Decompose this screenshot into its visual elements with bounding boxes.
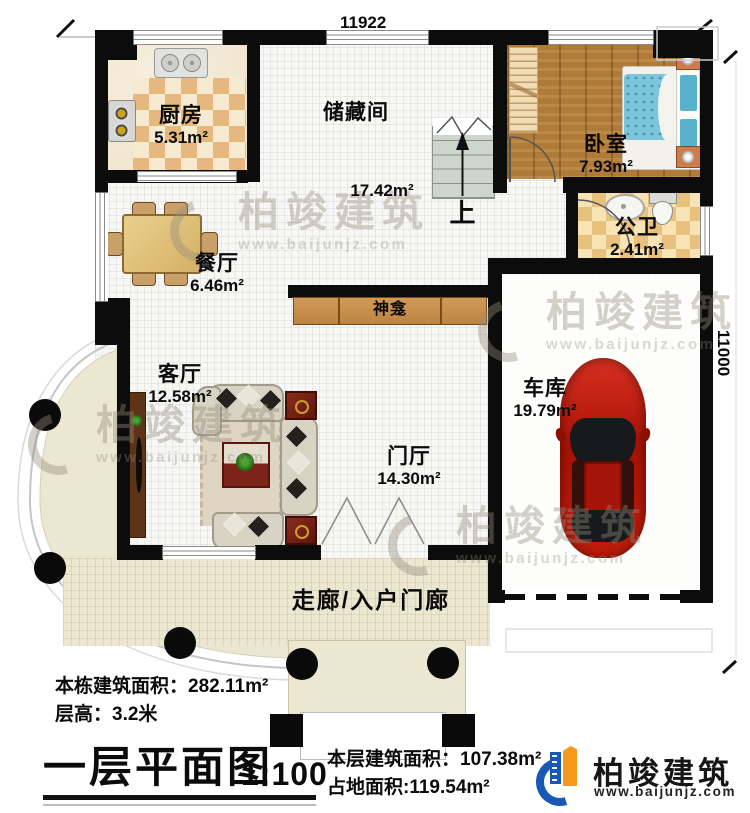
- stat-value: 3.2米: [112, 704, 157, 725]
- coffee-table: [222, 442, 270, 488]
- stat-label: 本层建筑面积：: [327, 749, 460, 770]
- stats-right: 本层建筑面积：107.38m² 占地面积:119.54m²: [327, 746, 541, 802]
- stat-building-total: 本栋建筑面积：282.11m²: [55, 673, 268, 701]
- column: [34, 552, 66, 584]
- room-label-bathroom: 公卫 2.41m²: [610, 216, 664, 259]
- stove-burner: [113, 105, 130, 122]
- room-area: 14.30m²: [377, 469, 440, 488]
- stat-label: 占地面积:: [327, 777, 409, 798]
- wall-segment: [488, 258, 713, 274]
- wall-segment: [428, 545, 490, 560]
- room-name: 餐厅: [190, 252, 244, 276]
- car-seats: [584, 462, 622, 512]
- bed-pillow: [679, 74, 698, 112]
- wall-segment: [488, 258, 502, 603]
- company-website: www.baijunjz.com: [594, 784, 736, 799]
- stat-value: 282.11m²: [188, 676, 268, 697]
- room-area: 19.79m²: [513, 401, 576, 420]
- title-underline-thin: [43, 804, 316, 806]
- room-name: 储藏间: [323, 101, 389, 125]
- window: [700, 206, 713, 256]
- stat-floor-height: 层高：3.2米: [55, 701, 268, 729]
- room-area: 5.31m²: [154, 128, 208, 147]
- room-area: 6.46m²: [190, 276, 244, 295]
- stat-label: 本栋建筑面积：: [55, 676, 188, 697]
- stove-burner: [113, 122, 130, 139]
- company-logo-icon: [536, 746, 588, 804]
- plant: [236, 453, 254, 471]
- side-table: [285, 391, 317, 420]
- floor-plan-canvas: 柏竣建筑 www.baijunjz.com 柏竣建筑 www.baijunjz.…: [0, 0, 750, 813]
- wall-segment: [700, 30, 713, 603]
- side-table: [285, 516, 317, 545]
- room-label-shrine: 神龛: [373, 301, 407, 319]
- wall-segment: [566, 193, 578, 268]
- sink-basin: [183, 54, 201, 72]
- room-name: 门厅: [377, 445, 440, 469]
- stat-value: 119.54m²: [409, 777, 489, 798]
- wall-segment: [563, 177, 713, 193]
- room-name: 车库: [513, 377, 576, 401]
- room-name: 公卫: [610, 216, 664, 240]
- stairs-up-label: 上: [449, 199, 476, 228]
- window: [548, 30, 654, 45]
- room-area: 12.58m²: [148, 387, 211, 406]
- column-square: [270, 714, 303, 747]
- bedroom-closet: [509, 47, 538, 133]
- kitchen-sink: [154, 48, 208, 78]
- wall-segment: [255, 545, 321, 560]
- stairs-break: [433, 118, 492, 135]
- room-label-bedroom: 卧室 7.93m²: [579, 133, 633, 176]
- room-name: 厨房: [154, 104, 208, 128]
- stairs: [432, 126, 495, 199]
- room-label-kitchen: 厨房 5.31m²: [154, 104, 208, 147]
- room-name: 神龛: [373, 301, 407, 319]
- stat-value: 107.38m²: [460, 749, 541, 770]
- tv-screen: [136, 437, 142, 493]
- kitchen-stove: [108, 100, 136, 142]
- drain: [621, 204, 626, 209]
- wall-segment: [493, 45, 507, 193]
- lamp: [682, 151, 694, 163]
- wall-segment: [247, 45, 260, 182]
- garage-door-dashed: [505, 590, 680, 603]
- room-name: 客厅: [148, 363, 211, 387]
- shrine-divider: [440, 298, 442, 324]
- window: [95, 192, 108, 302]
- plant: [131, 415, 142, 426]
- column: [164, 627, 196, 659]
- window: [133, 30, 223, 45]
- wall-segment: [95, 30, 108, 192]
- window: [162, 546, 256, 559]
- room-label-garage: 车库 19.79m²: [513, 377, 576, 420]
- kitchen-sliding-door: [137, 171, 237, 182]
- column: [29, 399, 61, 431]
- shrine-divider: [338, 298, 340, 324]
- dining-chair: [106, 232, 123, 256]
- stat-footprint: 占地面积:119.54m²: [327, 774, 541, 802]
- tv-cabinet: [128, 392, 146, 538]
- room-label-corridor: 走廊/入户门廊: [292, 588, 450, 614]
- room-area: 7.93m²: [579, 157, 633, 176]
- bed-sheet: [658, 74, 676, 140]
- room-area: 17.42m²: [350, 181, 413, 200]
- room-label-storage: 储藏间: [323, 101, 389, 125]
- drawing-scale: 1:100: [241, 756, 328, 793]
- wall-segment: [117, 545, 163, 560]
- column: [286, 648, 318, 680]
- title-underline: [43, 795, 316, 800]
- wall-segment: [117, 332, 130, 558]
- sink-basin: [161, 54, 179, 72]
- car-rear-glass: [572, 510, 634, 542]
- dimension-right: 11000: [713, 313, 733, 393]
- room-name: 卧室: [579, 133, 633, 157]
- room-label-foyer: 门厅 14.30m²: [377, 445, 440, 488]
- room-label-dining: 餐厅 6.46m²: [190, 252, 244, 295]
- nightstand: [676, 146, 701, 168]
- room-name: 走廊/入户门廊: [292, 588, 450, 614]
- stats-left: 本栋建筑面积：282.11m² 层高：3.2米: [55, 673, 268, 729]
- stairs-direction-text: 上: [449, 199, 476, 228]
- room-area: 2.41m²: [610, 240, 664, 259]
- room-area-storage: 17.42m²: [350, 181, 413, 200]
- logo-tower-blue: [550, 752, 561, 784]
- stat-floor-area: 本层建筑面积：107.38m²: [327, 746, 541, 774]
- logo-tower-orange: [563, 746, 577, 786]
- stat-label: 层高：: [55, 704, 112, 725]
- company-logo: 柏竣建筑 www.baijunjz.com: [536, 742, 736, 806]
- column: [427, 647, 459, 679]
- room-label-living: 客厅 12.58m²: [148, 363, 211, 406]
- dimension-top: 11922: [340, 13, 386, 33]
- column-square: [442, 714, 475, 747]
